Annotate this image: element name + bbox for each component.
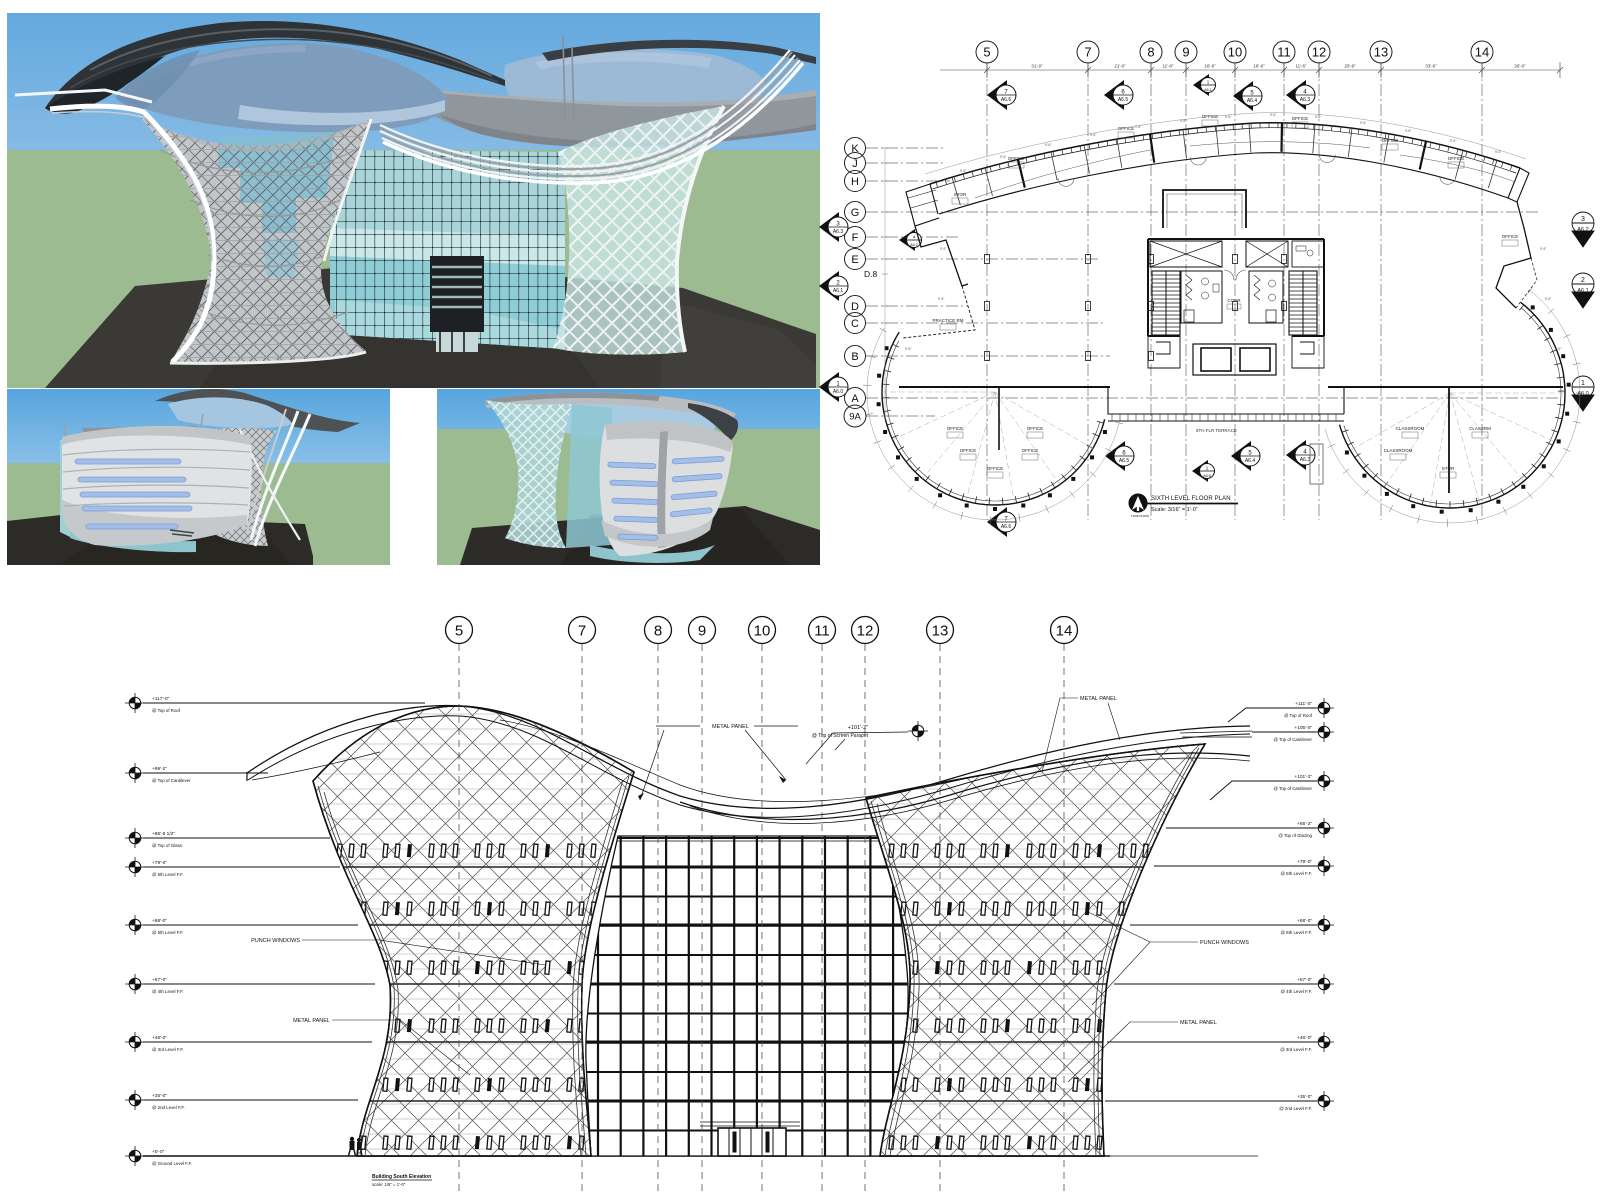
svg-text:20'-6”: 20'-6” — [1344, 64, 1356, 69]
svg-text:@ 6th Level F.F.: @ 6th Level F.F. — [1280, 871, 1312, 876]
svg-text:@ 4th Level F.F.: @ 4th Level F.F. — [152, 989, 184, 994]
svg-text:@ 2nd Level F.F.: @ 2nd Level F.F. — [152, 1105, 185, 1110]
svg-text:A6.4: A6.4 — [1245, 458, 1256, 464]
svg-text:+117'-0”: +117'-0” — [152, 696, 170, 702]
svg-text:@ 6th Level F.F.: @ 6th Level F.F. — [152, 872, 184, 877]
svg-text:@ Top of Cantilever: @ Top of Cantilever — [1273, 786, 1312, 791]
svg-text:@ Top of Cantilever: @ Top of Cantilever — [152, 778, 191, 783]
svg-text:26'-0”: 26'-0” — [1514, 64, 1526, 69]
svg-text:METAL PANEL: METAL PANEL — [1180, 1020, 1217, 1026]
svg-text:OFFICE: OFFICE — [960, 448, 977, 453]
svg-text:9'-6”: 9'-6” — [905, 347, 911, 351]
svg-text:11: 11 — [814, 623, 830, 640]
svg-text:12: 12 — [1312, 45, 1326, 60]
svg-text:16'-6”: 16'-6” — [1253, 64, 1265, 69]
svg-text:8: 8 — [654, 623, 662, 640]
svg-text:A6.3: A6.3 — [833, 229, 844, 235]
svg-text:OFFICE: OFFICE — [1292, 116, 1309, 121]
svg-text:9'-6”: 9'-6” — [1405, 129, 1411, 133]
svg-text:A6.5: A6.5 — [1119, 458, 1130, 464]
svg-text:9A: 9A — [849, 412, 861, 423]
svg-text:+46'-0”: +46'-0” — [1297, 1035, 1312, 1041]
svg-text:7: 7 — [578, 623, 586, 640]
svg-text:3: 3 — [1581, 216, 1585, 223]
svg-text:@ 2nd Level F.F.: @ 2nd Level F.F. — [1279, 1106, 1312, 1111]
svg-text:D.8: D.8 — [864, 269, 878, 279]
svg-text:10: 10 — [754, 623, 771, 640]
svg-text:B: B — [851, 351, 858, 363]
svg-text:9'-6”: 9'-6” — [1540, 247, 1546, 251]
svg-text:METAL PANEL: METAL PANEL — [293, 1018, 330, 1024]
svg-text:9: 9 — [698, 623, 706, 640]
svg-text:scale: 1/8” = 1’-0”: scale: 1/8” = 1’-0” — [372, 1182, 406, 1187]
svg-text:21'-0”: 21'-0” — [1114, 64, 1126, 69]
svg-text:+68'-0”: +68'-0” — [1297, 918, 1312, 924]
svg-text:Building South Elevation: Building South Elevation — [372, 1174, 431, 1180]
svg-text:+101’-2”: +101’-2” — [848, 725, 869, 731]
svg-text:@ 4th Level F.F.: @ 4th Level F.F. — [1280, 989, 1312, 994]
svg-text:9'-6”: 9'-6” — [1495, 150, 1501, 154]
svg-text:F: F — [852, 232, 859, 244]
svg-text:+35'-0”: +35'-0” — [152, 1093, 167, 1099]
svg-text:31'-0”: 31'-0” — [1031, 64, 1043, 69]
svg-text:1: 1 — [1581, 380, 1585, 387]
svg-text:33'-6”: 33'-6” — [1425, 64, 1437, 69]
svg-text:13: 13 — [1374, 45, 1388, 60]
svg-text:5: 5 — [455, 623, 463, 640]
svg-text:9'-6”: 9'-6” — [1315, 115, 1321, 119]
svg-text:STOR: STOR — [954, 192, 967, 197]
svg-text:@ Top of Glass: @ Top of Glass — [152, 843, 183, 848]
svg-text:PUNCH WINDOWS: PUNCH WINDOWS — [251, 938, 300, 944]
svg-text:E: E — [851, 254, 858, 266]
svg-text:6TH FLR TERRACE: 6TH FLR TERRACE — [1196, 428, 1237, 433]
svg-text:TRUE NORTH: TRUE NORTH — [1131, 514, 1149, 518]
svg-text:STOR: STOR — [1442, 466, 1455, 471]
svg-text:+68'-0”: +68'-0” — [152, 918, 167, 924]
svg-text:+35'-0”: +35'-0” — [1297, 1094, 1312, 1100]
svg-text:SIXTH LEVEL FLOOR PLAN: SIXTH LEVEL FLOOR PLAN — [1151, 496, 1231, 502]
svg-text:A6.1: A6.1 — [833, 288, 844, 294]
svg-text:9: 9 — [1182, 45, 1189, 60]
svg-text:@ 3rd Level F.F.: @ 3rd Level F.F. — [152, 1047, 184, 1052]
svg-text:13: 13 — [932, 623, 949, 640]
svg-text:9'-6”: 9'-6” — [1045, 143, 1051, 147]
svg-text:14: 14 — [1056, 623, 1073, 640]
svg-text:@ Top of Screen Parapet: @ Top of Screen Parapet — [812, 733, 869, 739]
svg-text:A6.5: A6.5 — [1118, 97, 1129, 103]
svg-text:J: J — [852, 158, 858, 170]
svg-text:+0'-0”: +0'-0” — [152, 1149, 165, 1155]
svg-text:7: 7 — [1084, 45, 1091, 60]
svg-text:@ 5th Level F.F.: @ 5th Level F.F. — [152, 930, 184, 935]
svg-text:PRACTICE RM: PRACTICE RM — [932, 318, 963, 323]
svg-text:2: 2 — [1581, 277, 1585, 284]
svg-text:11'-6”: 11'-6” — [1162, 64, 1174, 69]
svg-text:A: A — [851, 393, 859, 405]
svg-text:+79'-0”: +79'-0” — [152, 860, 167, 866]
svg-text:A6.6: A6.6 — [1203, 474, 1211, 478]
svg-text:D: D — [851, 301, 859, 313]
svg-text:9'-6”: 9'-6” — [1000, 155, 1006, 159]
svg-text:+101'-2”: +101'-2” — [1294, 774, 1312, 780]
svg-text:5: 5 — [983, 45, 990, 60]
svg-text:OFFICE: OFFICE — [1382, 138, 1399, 143]
svg-text:CLASSRM: CLASSRM — [1469, 426, 1491, 431]
svg-text:16'-6”: 16'-6” — [1204, 64, 1216, 69]
svg-text:9'-6”: 9'-6” — [1360, 121, 1366, 125]
svg-text:A6.3: A6.3 — [1300, 97, 1311, 103]
svg-text:A6.1: A6.1 — [1204, 88, 1212, 92]
svg-text:9'-6”: 9'-6” — [960, 169, 966, 173]
svg-text:11'-6”: 11'-6” — [1295, 64, 1307, 69]
svg-text:@ Top of Cantilever: @ Top of Cantilever — [1273, 737, 1312, 742]
svg-text:A6.6: A6.6 — [1001, 97, 1012, 103]
svg-text:G: G — [851, 207, 860, 219]
svg-text:11: 11 — [1277, 45, 1291, 60]
svg-text:A6.4: A6.4 — [1247, 98, 1258, 104]
svg-text:8: 8 — [1147, 45, 1154, 60]
svg-text:9'-6”: 9'-6” — [1090, 133, 1096, 137]
svg-text:A6.6: A6.6 — [1001, 524, 1012, 530]
svg-text:+57'-0”: +57'-0” — [1297, 977, 1312, 983]
svg-text:@ 5th Level F.F.: @ 5th Level F.F. — [1280, 930, 1312, 935]
svg-text:9'-6”: 9'-6” — [940, 247, 946, 251]
svg-text:+105'-0”: +105'-0” — [1294, 725, 1312, 731]
svg-text:CLASSROOM: CLASSROOM — [1384, 448, 1413, 453]
svg-text:@ Top of Glazing: @ Top of Glazing — [1278, 833, 1312, 838]
svg-text:OFFICE: OFFICE — [987, 466, 1004, 471]
svg-text:10: 10 — [1228, 45, 1242, 60]
svg-text:@ 3rd Level F.F.: @ 3rd Level F.F. — [1280, 1047, 1312, 1052]
svg-text:9'-6”: 9'-6” — [1180, 119, 1186, 123]
svg-text:+79'-0”: +79'-0” — [1297, 859, 1312, 865]
svg-text:C: C — [851, 318, 859, 330]
svg-text:METAL PANEL: METAL PANEL — [712, 724, 749, 730]
svg-text:9'-6”: 9'-6” — [1270, 113, 1276, 117]
svg-text:12: 12 — [857, 623, 874, 640]
svg-text:A6.0: A6.0 — [833, 389, 844, 395]
svg-text:CORR: CORR — [1227, 298, 1241, 303]
svg-text:9'-6”: 9'-6” — [938, 297, 944, 301]
svg-text:9'-6”: 9'-6” — [1135, 125, 1141, 129]
svg-text:A6.3: A6.3 — [1300, 457, 1311, 463]
svg-text:9'-6”: 9'-6” — [1225, 115, 1231, 119]
svg-text:OFFICE: OFFICE — [1502, 234, 1519, 239]
svg-text:OFFICE: OFFICE — [947, 426, 964, 431]
svg-text:OFFICE: OFFICE — [1008, 156, 1025, 161]
svg-text:+99'-2”: +99'-2” — [152, 766, 167, 772]
svg-text:@ Ground Level F.F.: @ Ground Level F.F. — [152, 1161, 192, 1166]
svg-text:OFFICE: OFFICE — [1022, 448, 1039, 453]
svg-text:+85'-2”: +85'-2” — [1297, 821, 1312, 827]
svg-text:A6.2: A6.2 — [910, 243, 918, 247]
svg-text:@ Top of Roof: @ Top of Roof — [152, 708, 181, 713]
svg-text:+85'-5 1/2”: +85'-5 1/2” — [152, 831, 175, 837]
svg-text:9'-6”: 9'-6” — [1545, 297, 1551, 301]
svg-text:METAL PANEL: METAL PANEL — [1080, 696, 1117, 702]
svg-text:9'-6”: 9'-6” — [1555, 347, 1561, 351]
svg-text:+46'-0”: +46'-0” — [152, 1035, 167, 1041]
svg-text:9'-6”: 9'-6” — [1450, 139, 1456, 143]
svg-text:PUNCH WINDOWS: PUNCH WINDOWS — [1200, 940, 1249, 946]
svg-text:14: 14 — [1475, 45, 1489, 60]
svg-text:OFFICE: OFFICE — [1448, 156, 1465, 161]
svg-text:OFFICE: OFFICE — [1027, 426, 1044, 431]
svg-text:+57'-0”: +57'-0” — [152, 977, 167, 983]
svg-text:H: H — [851, 176, 859, 188]
svg-text:Scale: 3/16” = 1’-0”: Scale: 3/16” = 1’-0” — [1151, 507, 1198, 513]
svg-text:+111'-0”: +111'-0” — [1295, 701, 1312, 707]
svg-text:@ Top of Roof: @ Top of Roof — [1284, 713, 1313, 718]
svg-text:CLASSROOM: CLASSROOM — [1396, 426, 1425, 431]
